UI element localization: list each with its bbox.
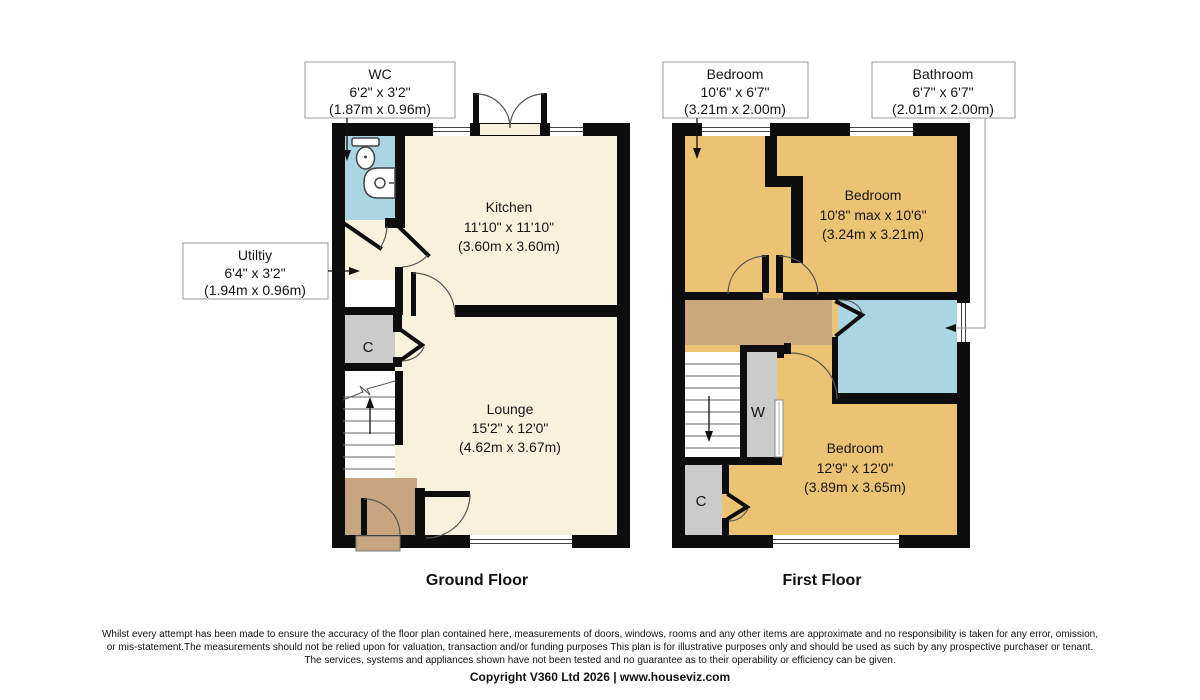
bedroom-front-imperial: 12'9" x 12'0": [817, 460, 894, 476]
lounge-size-metric: (4.62m x 3.67m): [459, 439, 561, 455]
bedroom-small-callout-metric: (3.21m x 2.00m): [684, 101, 786, 117]
first-window-top-left: [702, 123, 770, 136]
utility-room: [343, 280, 395, 307]
copyright-line: Copyright V360 Ltd 2026 | www.houseviz.c…: [470, 670, 730, 684]
wc-callout-name: WC: [368, 66, 391, 82]
ground-window-top-left: [433, 123, 470, 136]
bathroom-window: [957, 303, 970, 342]
ground-cupboard-label: C: [363, 339, 374, 356]
lounge-label: Lounge: [487, 401, 534, 417]
utility-callout-name: Utiltiy: [238, 247, 272, 263]
disclaimer-line-1: Whilst every attempt has been made to en…: [102, 629, 1098, 640]
disclaimer-line-2: or mis-statement.The measurements should…: [107, 642, 1093, 653]
floor-plan-canvas: Kitchen 11'10" x 11'10" (3.60m x 3.60m) …: [0, 0, 1200, 700]
basin-icon: [364, 168, 395, 198]
front-door-recess: [356, 536, 400, 551]
bedroom-small-callout-imperial: 10'6" x 6'7": [701, 84, 770, 100]
utility-callout-imperial: 6'4" x 3'2": [224, 265, 285, 281]
wc-callout-metric: (1.87m x 0.96m): [329, 101, 431, 117]
utility-callout-metric: (1.94m x 0.96m): [204, 282, 306, 298]
bedroom-rear-label: Bedroom: [845, 187, 902, 203]
ground-floor-plan: Kitchen 11'10" x 11'10" (3.60m x 3.60m) …: [183, 62, 630, 589]
kitchen-size-metric: (3.60m x 3.60m): [458, 238, 560, 254]
bathroom-callout-name: Bathroom: [913, 66, 974, 82]
bedroom-front-metric: (3.89m x 3.65m): [804, 479, 906, 495]
lounge-size-imperial: 15'2" x 12'0": [472, 420, 549, 436]
french-doors: [473, 93, 547, 128]
ground-window-top-right: [550, 123, 583, 136]
ground-floor-title: Ground Floor: [426, 572, 528, 589]
bedroom-rear-metric: (3.24m x 3.21m): [822, 226, 924, 242]
bathroom-callout-imperial: 6'7" x 6'7": [912, 84, 973, 100]
landing: [685, 298, 832, 345]
bedroom-rear-imperial: 10'8" max x 10'6": [819, 207, 926, 223]
wc-callout-imperial: 6'2" x 3'2": [349, 84, 410, 100]
disclaimer-line-3: The services, systems and appliances sho…: [304, 655, 895, 666]
ground-stairs-area: [343, 371, 395, 478]
bedroom-front-label: Bedroom: [827, 440, 884, 456]
bedroom-small-callout-name: Bedroom: [707, 66, 764, 82]
first-window-top-right: [850, 123, 913, 136]
kitchen-label: Kitchen: [486, 199, 533, 215]
first-stairs-area: [685, 352, 740, 457]
entrance-hall: [343, 478, 417, 535]
wardrobe-label: W: [751, 404, 766, 421]
ground-window-bottom: [470, 535, 572, 548]
first-floor-plan: Bedroom 10'8" max x 10'6" (3.24m x 3.21m…: [663, 62, 1015, 589]
footer: Whilst every attempt has been made to en…: [102, 629, 1098, 684]
first-floor-title: First Floor: [782, 572, 861, 589]
first-window-bottom: [773, 535, 899, 548]
first-cupboard-label: C: [696, 493, 707, 510]
bathroom-callout-metric: (2.01m x 2.00m): [892, 101, 994, 117]
kitchen-size-imperial: 11'10" x 11'10": [464, 219, 554, 235]
